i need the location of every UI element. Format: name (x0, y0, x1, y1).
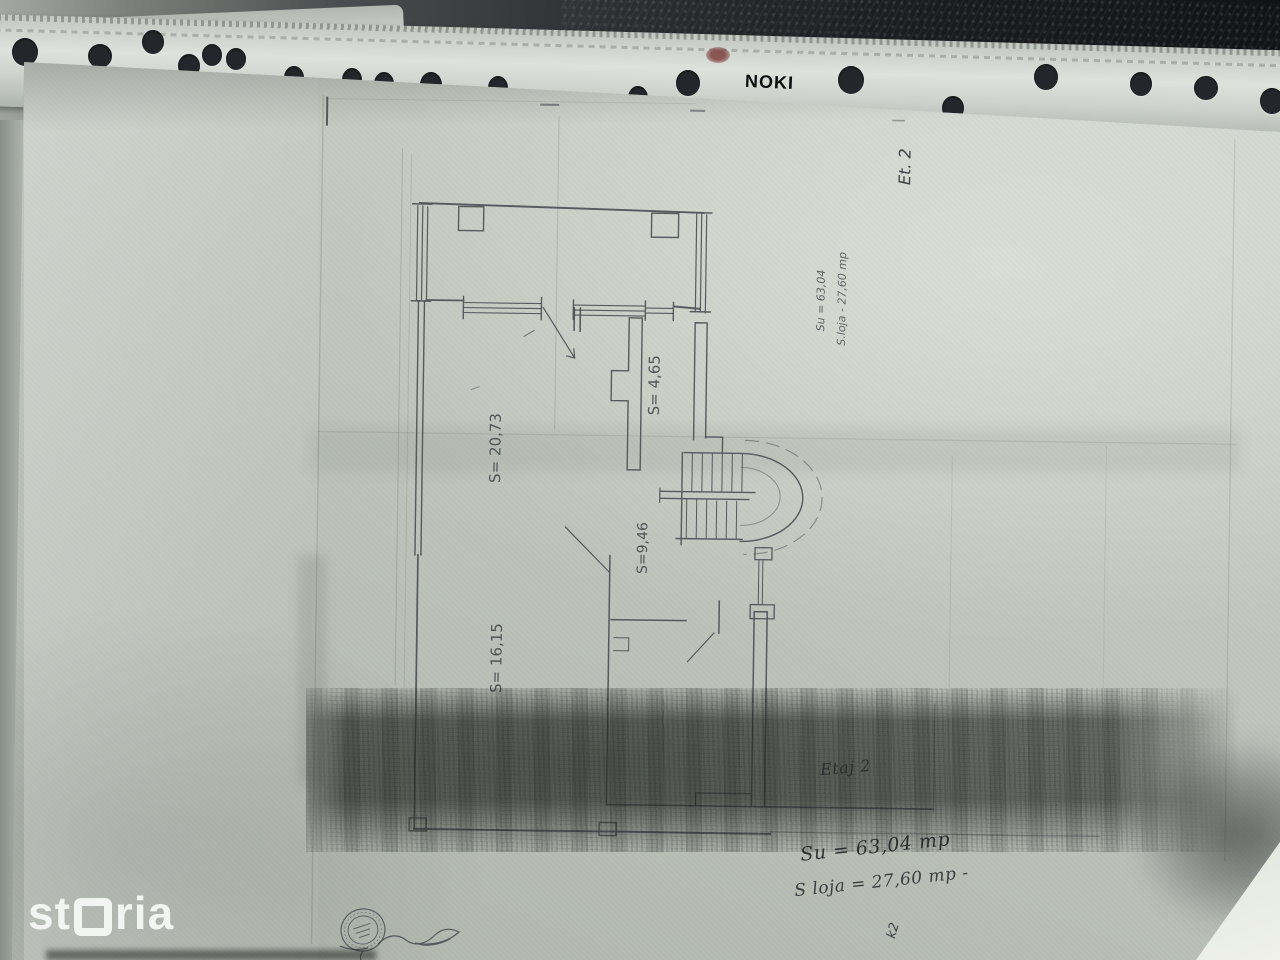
sleeve-hole (1260, 88, 1280, 114)
sleeve-hole (202, 44, 222, 66)
red-mark (706, 47, 730, 63)
pencil-area-note: S.loja - 27,60 mp (835, 252, 849, 346)
corner-mark-note: k2 (884, 921, 903, 940)
sleeve-hole (838, 66, 864, 94)
photocopy-toner-band (306, 688, 1240, 852)
floor-number-note: Et. 2 (895, 148, 915, 185)
sleeve-hole (1034, 64, 1058, 90)
sleeve-hole (1130, 72, 1152, 96)
room-area-label: S= 4,65 (645, 355, 664, 416)
pencil-area-note: Su = 63,04 (814, 270, 828, 332)
photo-of-floorplan-in-sleeve: NOKI (0, 0, 1280, 960)
storia-square-o-icon (74, 898, 112, 936)
sleeve-hole (226, 48, 246, 70)
paper-bottom-edge-shadow (46, 950, 376, 960)
scanned-floorplan-page: S= 20,73 S= 4,65 S=9,46 S= 16,15 Et. 2 S… (0, 0, 1280, 960)
sleeve-hole (12, 38, 38, 66)
storia-watermark-suffix: ria (115, 886, 174, 940)
sleeve-hole (1194, 76, 1218, 100)
storia-watermark-prefix: st (28, 886, 71, 940)
storia-watermark: st ria (28, 886, 174, 940)
sleeve-brand-label: NOKI (745, 71, 795, 94)
copier-smudge (310, 428, 1240, 472)
room-area-label: S= 16,15 (487, 623, 506, 693)
sleeve-hole (676, 70, 700, 96)
room-area-label: S=9,46 (635, 522, 652, 574)
sleeve-hole (142, 30, 164, 54)
sleeve-hole (88, 44, 112, 68)
